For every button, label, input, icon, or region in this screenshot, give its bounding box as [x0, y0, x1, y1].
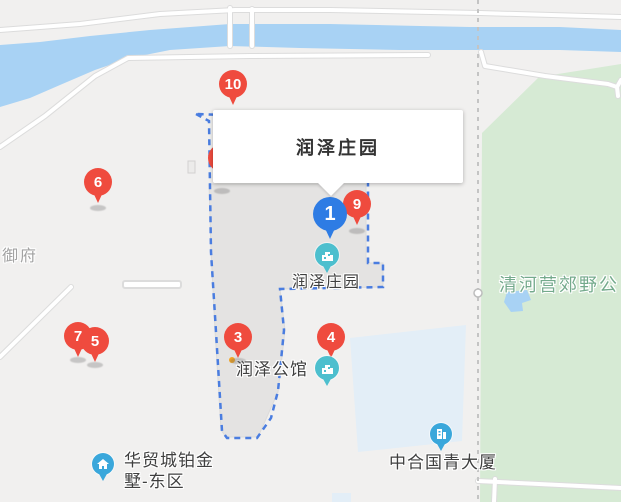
poi-label-huamao[interactable]: 华贸城铂金 墅-东区: [124, 450, 214, 492]
selected-blue-map-pin-1[interactable]: 1: [313, 197, 347, 231]
poi-label-zhonghe[interactable]: 中合国青大厦: [389, 452, 497, 473]
map-canvas[interactable]: 御府 清河营郊野公 润泽庄园 润泽公馆 华贸城铂金 墅-东区 中合国青大厦 10…: [0, 0, 621, 502]
callout-title: 润泽庄园: [213, 110, 463, 183]
pin-number: 1: [324, 203, 335, 226]
poi-label-runze-mansion[interactable]: 润泽公馆: [236, 359, 308, 380]
area-label-qinghe-park: 清河营郊野公: [499, 271, 619, 297]
teal-building-poi-icon[interactable]: [315, 243, 339, 267]
map-pin-3[interactable]: 3: [224, 323, 252, 351]
highrise-glyph: [434, 428, 448, 440]
pin-number: 6: [94, 174, 102, 191]
pin-number: 9: [353, 196, 361, 213]
area-label-yufu: 御府: [2, 242, 38, 266]
pin-number: 3: [234, 329, 242, 346]
pin-shadow: [87, 362, 103, 368]
poi-label-huamao-line1: 华贸城铂金: [124, 450, 214, 471]
building-glyph: [320, 362, 335, 375]
building-glyph: [320, 249, 335, 262]
small-blue-block: [332, 493, 351, 502]
blue-house-poi-icon[interactable]: [92, 453, 114, 475]
map-pin-6[interactable]: 6: [84, 168, 112, 196]
poi-label-huamao-line2: 墅-东区: [124, 471, 214, 492]
small-building-outline: [188, 161, 195, 173]
map-pin-5[interactable]: 5: [81, 327, 109, 355]
info-callout[interactable]: 润泽庄园: [213, 110, 463, 183]
pin-number: 4: [327, 329, 335, 346]
pin-shadow: [349, 228, 365, 234]
pin-shadow: [230, 358, 246, 364]
house-glyph: [96, 458, 110, 470]
boundary-node-dot: [474, 289, 482, 297]
map-pin-4[interactable]: 4: [317, 323, 345, 351]
callout-pointer: [318, 183, 344, 196]
basemap-tiles: [0, 0, 621, 502]
teal-building-poi-icon[interactable]: [315, 356, 339, 380]
pin-shadow: [70, 357, 86, 363]
pin-number: 10: [225, 76, 242, 93]
map-pin-9[interactable]: 9: [343, 190, 371, 218]
blue-highrise-poi-icon[interactable]: [430, 423, 452, 445]
pin-shadow: [90, 205, 106, 211]
pin-shadow: [214, 188, 230, 194]
pin-number: 5: [91, 333, 99, 350]
map-pin-10[interactable]: 10: [219, 70, 247, 98]
